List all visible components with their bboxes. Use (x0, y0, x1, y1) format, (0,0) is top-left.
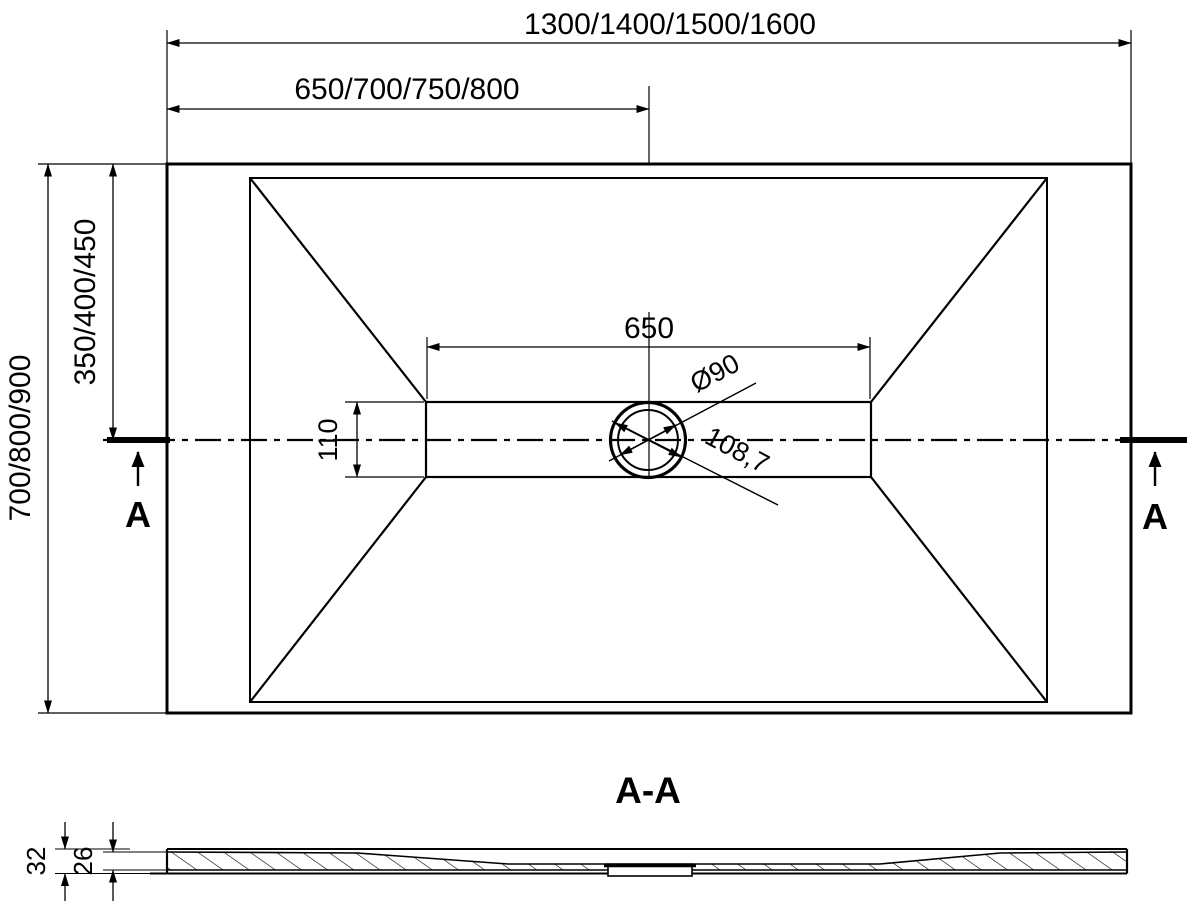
section-drain-recess (604, 864, 696, 876)
dim-total-height: 32 (21, 822, 65, 901)
slope-diagonal-top-right (871, 178, 1047, 402)
dim-base-height-label: 26 (68, 847, 98, 876)
section-view: A-A 32 26 (21, 770, 1127, 901)
slope-diagonal-bottom-left (250, 477, 426, 702)
technical-drawing-page: Ø90 108,7 1300/1400/1500/1600 650/700/75… (0, 0, 1200, 904)
dim-center-depth: 350/400/450 (69, 164, 113, 440)
slope-diagonal-bottom-right (871, 477, 1047, 702)
dim-base-height: 26 (68, 822, 113, 901)
drain-diameter-label: Ø90 (685, 348, 744, 398)
dim-overall-width-label: 1300/1400/1500/1600 (524, 8, 816, 41)
drain-outer-callout: 108,7 (612, 421, 778, 505)
dim-channel-width-label: 110 (313, 418, 343, 461)
section-label-left: A (125, 494, 151, 535)
dim-center-depth-label: 350/400/450 (69, 219, 102, 386)
dim-overall-depth-label: 700/800/900 (4, 355, 37, 522)
dim-center-offset-label: 650/700/750/800 (294, 73, 519, 106)
drain-outer-label: 108,7 (700, 421, 774, 479)
technical-drawing-canvas: Ø90 108,7 1300/1400/1500/1600 650/700/75… (0, 0, 1200, 904)
section-cut-left: A (107, 440, 170, 535)
dim-total-height-label: 32 (21, 847, 51, 876)
plan-view: Ø90 108,7 1300/1400/1500/1600 650/700/75… (4, 8, 1192, 713)
section-title: A-A (615, 770, 681, 811)
slope-diagonal-top-left (250, 178, 426, 402)
dim-center-offset: 650/700/750/800 (167, 73, 649, 109)
dim-channel-length-label: 650 (624, 312, 674, 345)
section-label-right: A (1142, 496, 1168, 537)
